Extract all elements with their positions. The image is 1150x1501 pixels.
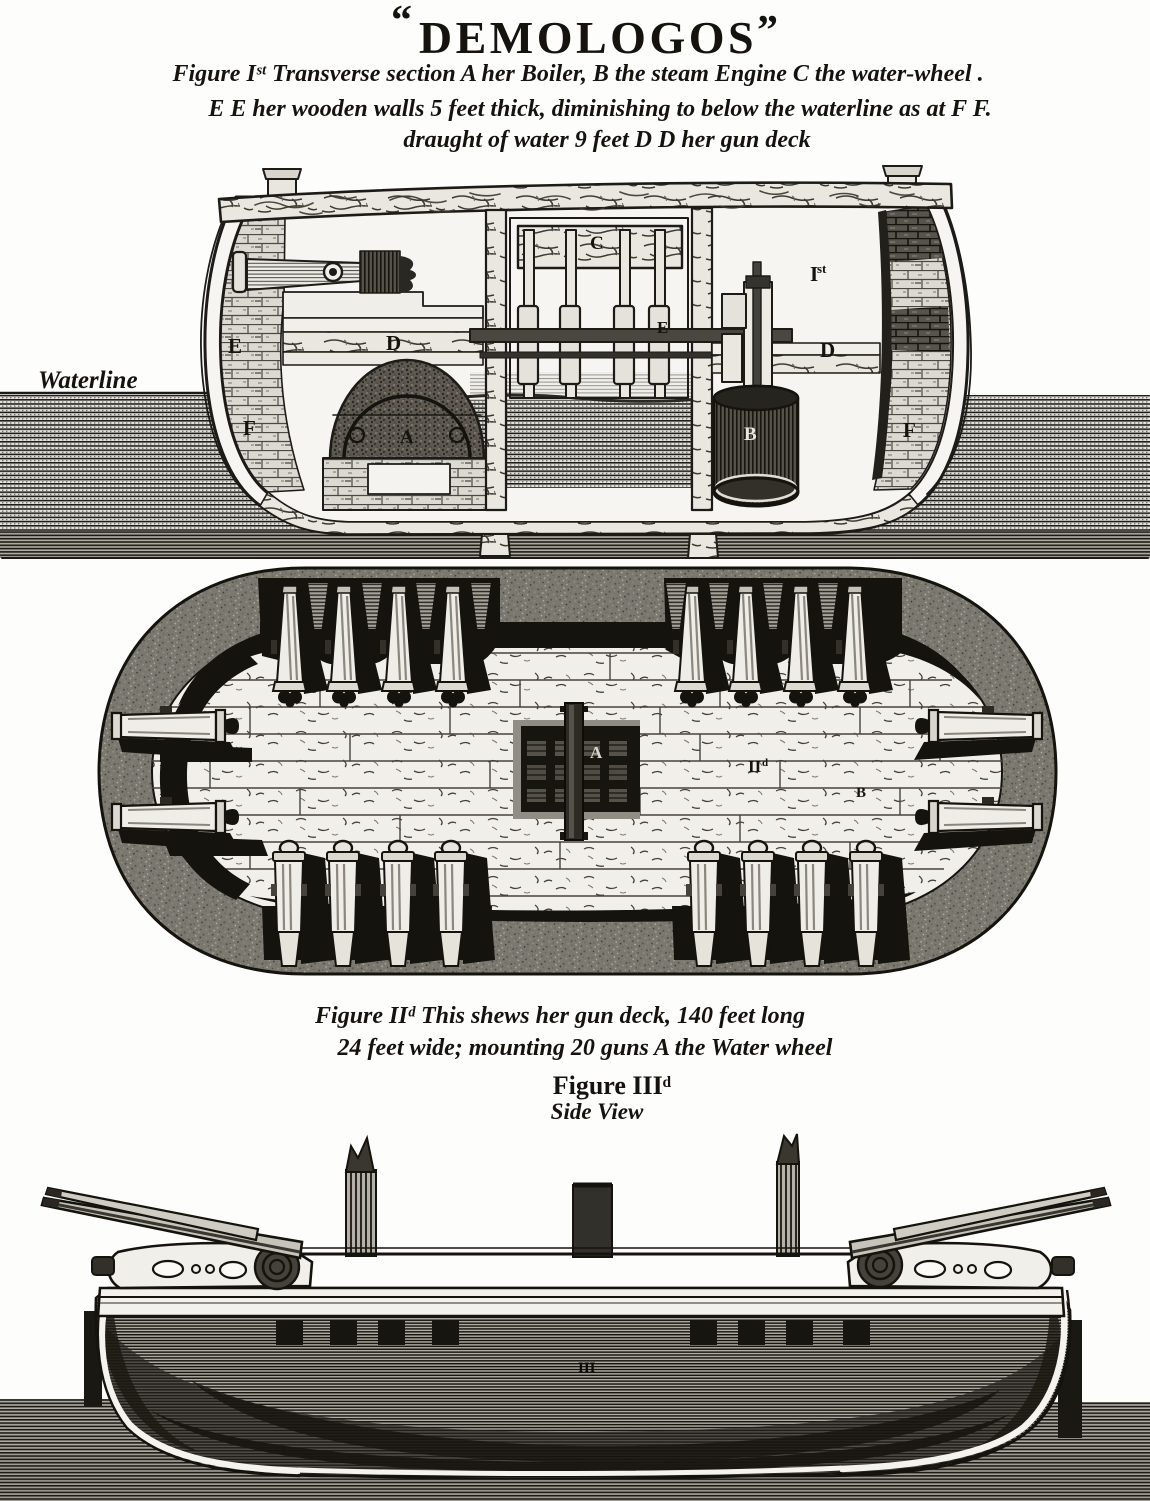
svg-text:D: D (386, 331, 401, 355)
svg-text:A: A (400, 427, 414, 448)
svg-text:D: D (820, 338, 835, 362)
svg-text:E: E (657, 318, 668, 337)
svg-text:draught of water 9 feet D D he: draught of water 9 feet D D her gun deck (403, 127, 810, 153)
svg-text:DEMOLOGOS: DEMOLOGOS (419, 12, 757, 63)
svg-text:E: E (228, 334, 242, 358)
svg-text:Figure IIIᵈ: Figure IIIᵈ (553, 1071, 672, 1100)
svg-text:A: A (590, 743, 603, 762)
svg-text:”: ” (757, 8, 778, 54)
svg-text:“: “ (391, 0, 412, 44)
svg-text:Side View: Side View (551, 1099, 644, 1124)
svg-text:d: d (762, 757, 768, 769)
svg-text:B: B (856, 785, 866, 801)
svg-text:C: C (590, 233, 604, 254)
svg-text:III: III (578, 1360, 596, 1376)
svg-text:F: F (243, 416, 256, 440)
svg-text:st: st (817, 261, 827, 276)
svg-text:F: F (903, 418, 916, 442)
svg-text:Waterline: Waterline (38, 367, 138, 394)
svg-text:24 feet wide; mounting 20 guns: 24 feet wide; mounting 20 guns A the Wat… (337, 1035, 833, 1061)
svg-text:Figure Iˢᵗ Transverse section: Figure Iˢᵗ Transverse section A her Boil… (171, 61, 983, 87)
svg-text:Figure IIᵈ This shews her gun: Figure IIᵈ This shews her gun deck, 140 … (314, 1003, 805, 1029)
svg-text:II: II (748, 757, 762, 776)
svg-text:B: B (744, 424, 757, 445)
svg-text:E E her wooden walls 5 feet th: E E her wooden walls 5 feet thick, dimin… (207, 96, 991, 122)
